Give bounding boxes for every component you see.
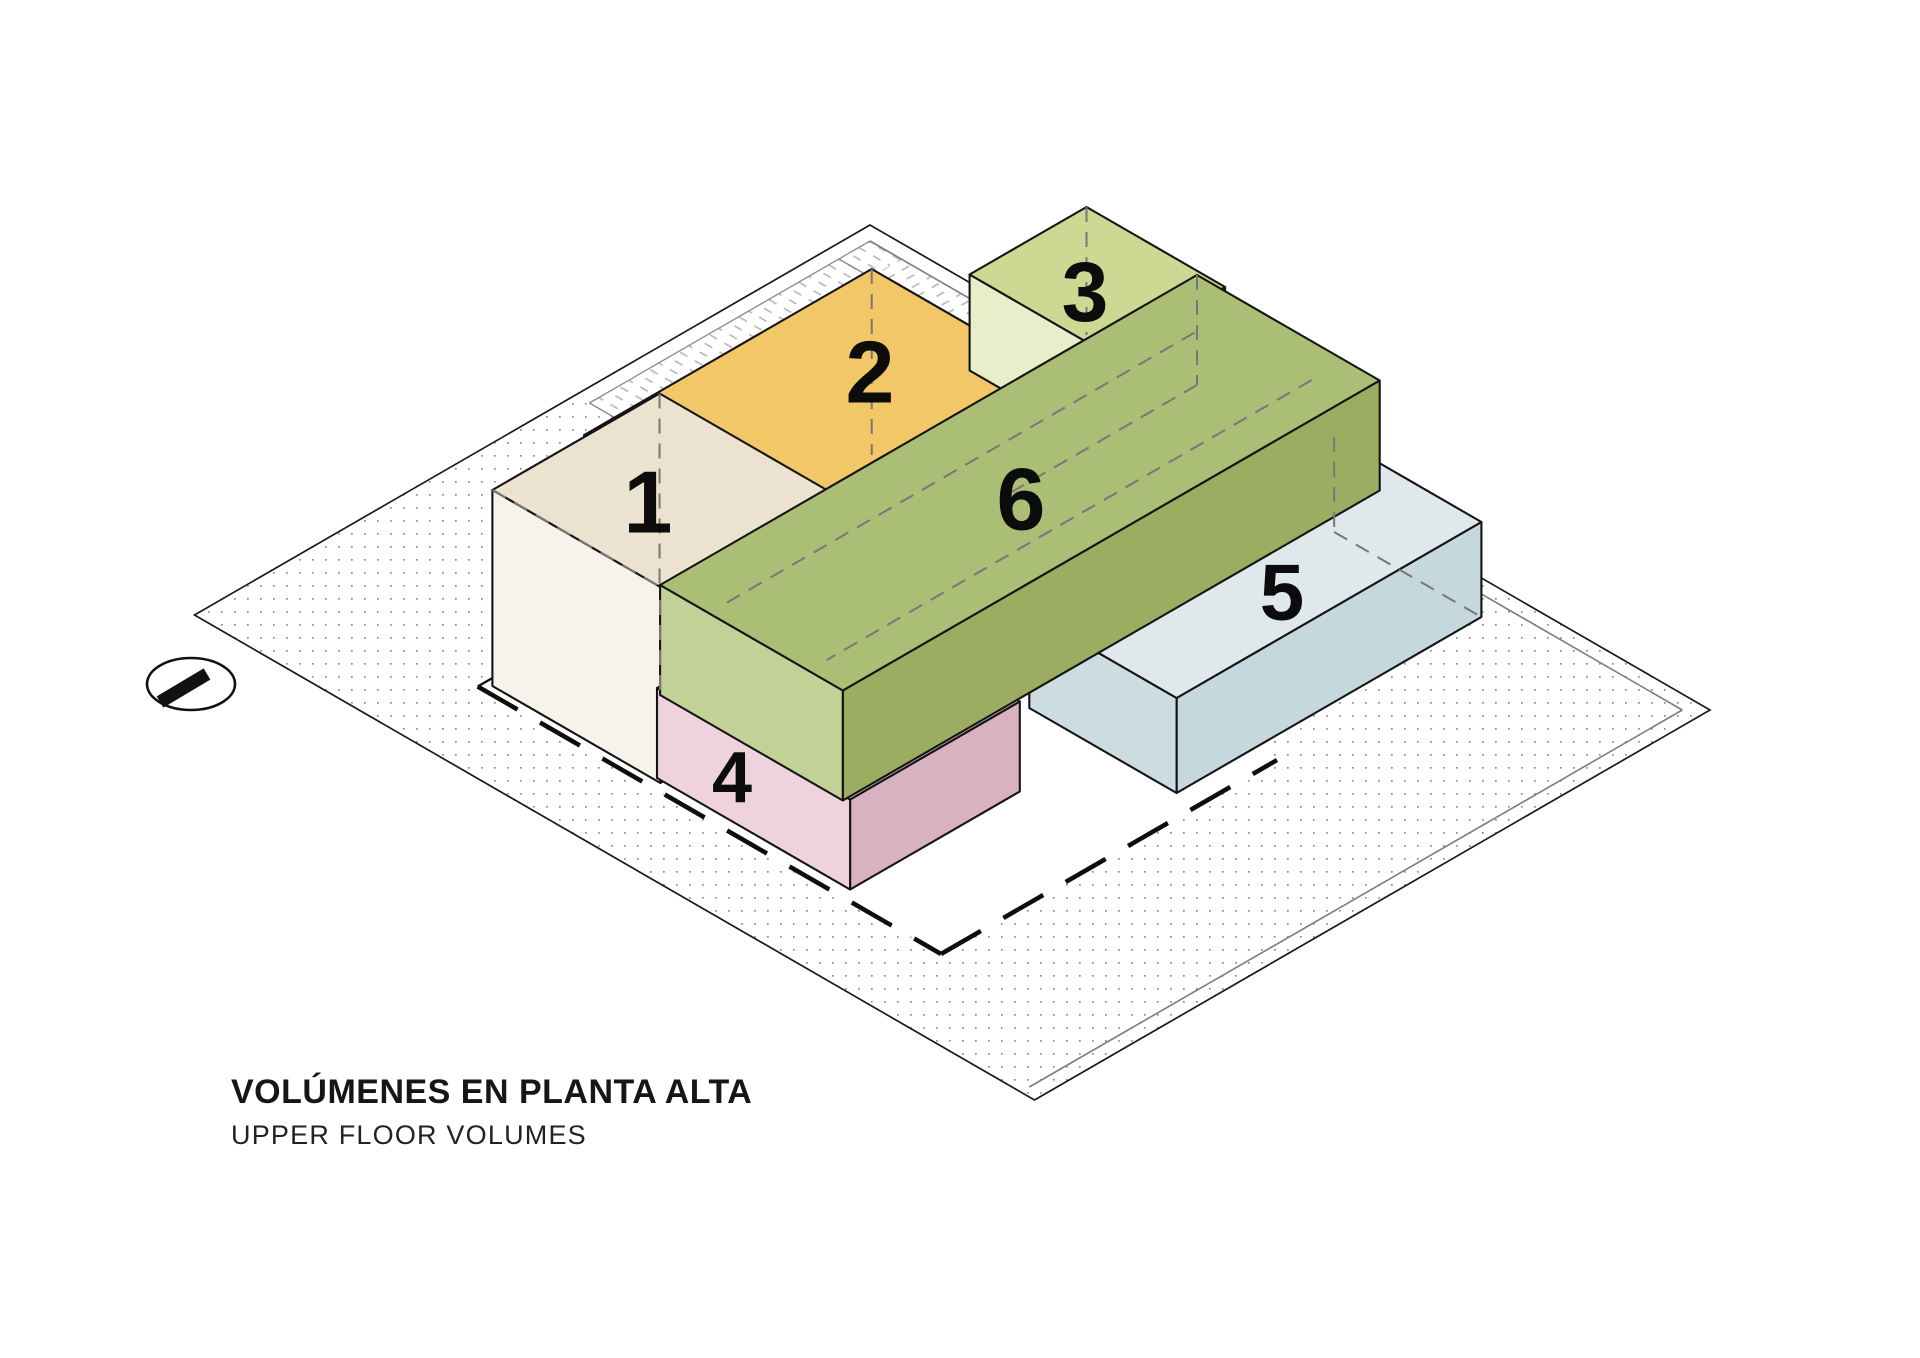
axonometric-diagram: 235146 xyxy=(0,0,1920,1358)
volume-4-label: 4 xyxy=(712,738,752,818)
orientation-marker xyxy=(147,658,235,710)
diagram-page: 235146 VOLÚMENES EN PLANTA ALTA UPPER FL… xyxy=(0,0,1920,1358)
volume-5-label: 5 xyxy=(1260,548,1305,637)
volume-3-label: 3 xyxy=(1062,245,1109,339)
volume-1-label: 1 xyxy=(624,453,673,552)
diagram-title-en: UPPER FLOOR VOLUMES xyxy=(231,1120,752,1151)
volume-6-label: 6 xyxy=(997,450,1046,549)
volume-2-label: 2 xyxy=(846,323,895,422)
title-block: VOLÚMENES EN PLANTA ALTA UPPER FLOOR VOL… xyxy=(231,1072,752,1151)
diagram-title-es: VOLÚMENES EN PLANTA ALTA xyxy=(231,1072,752,1113)
